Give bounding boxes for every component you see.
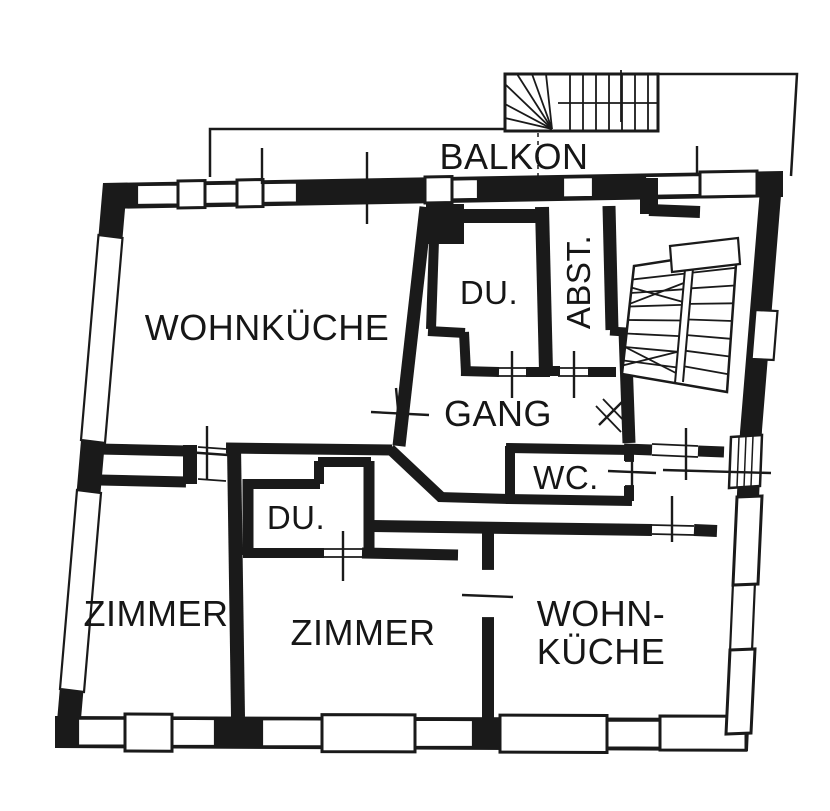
label-wohnkueche-bottom-line1: WOHN-	[537, 593, 665, 634]
floor-plan-drawing: BALKON WOHNKÜCHE DU. ABST. GANG WC. DU. …	[0, 0, 830, 811]
label-du-bottom: DU.	[267, 499, 325, 536]
label-wc: WC.	[533, 459, 599, 496]
external-stair-winders	[505, 74, 552, 129]
label-abst: ABST.	[560, 235, 597, 329]
label-wohnkueche-top: WOHNKÜCHE	[145, 307, 390, 348]
floor-plan: BALKON WOHNKÜCHE DU. ABST. GANG WC. DU. …	[0, 0, 830, 811]
internal-staircase	[622, 238, 740, 392]
entrance-door	[729, 435, 762, 488]
label-zimmer-center: ZIMMER	[291, 612, 436, 653]
label-wohnkueche-bottom-line2: KÜCHE	[537, 631, 666, 672]
room-labels: BALKON WOHNKÜCHE DU. ABST. GANG WC. DU. …	[84, 136, 666, 672]
label-zimmer-left: ZIMMER	[84, 593, 229, 634]
external-stair-treads	[558, 74, 658, 131]
label-balkon: BALKON	[439, 136, 588, 177]
label-gang: GANG	[444, 393, 552, 434]
label-du-top: DU.	[460, 274, 518, 311]
